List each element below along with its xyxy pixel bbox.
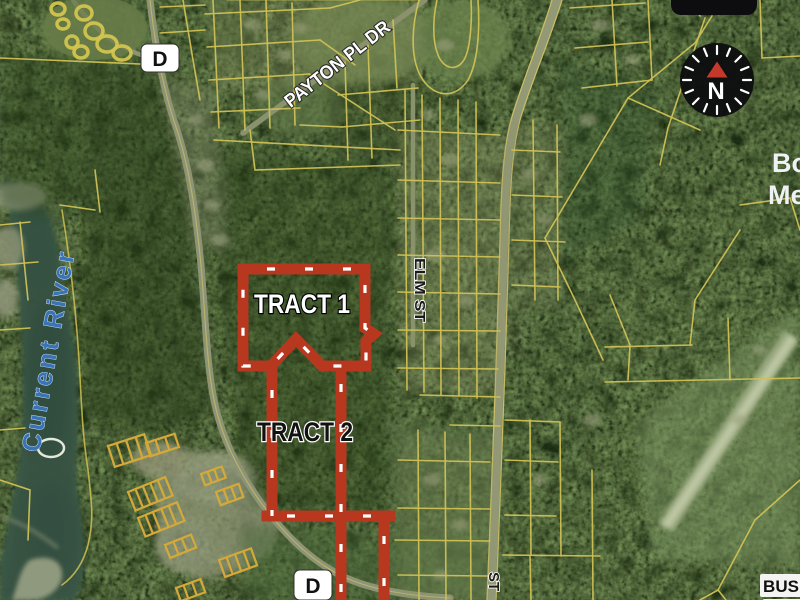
svg-text:D: D <box>152 48 167 71</box>
svg-text:ELM ST: ELM ST <box>411 258 428 322</box>
svg-text:TRACT 2: TRACT 2 <box>257 417 353 447</box>
svg-text:Bo: Bo <box>772 148 800 178</box>
svg-text:BUS: BUS <box>763 577 799 596</box>
svg-text:TRACT 1: TRACT 1 <box>254 289 350 319</box>
svg-text:Me: Me <box>768 180 800 210</box>
svg-text:ST: ST <box>485 572 502 591</box>
svg-text:D: D <box>305 575 320 598</box>
svg-text:N: N <box>707 78 724 105</box>
